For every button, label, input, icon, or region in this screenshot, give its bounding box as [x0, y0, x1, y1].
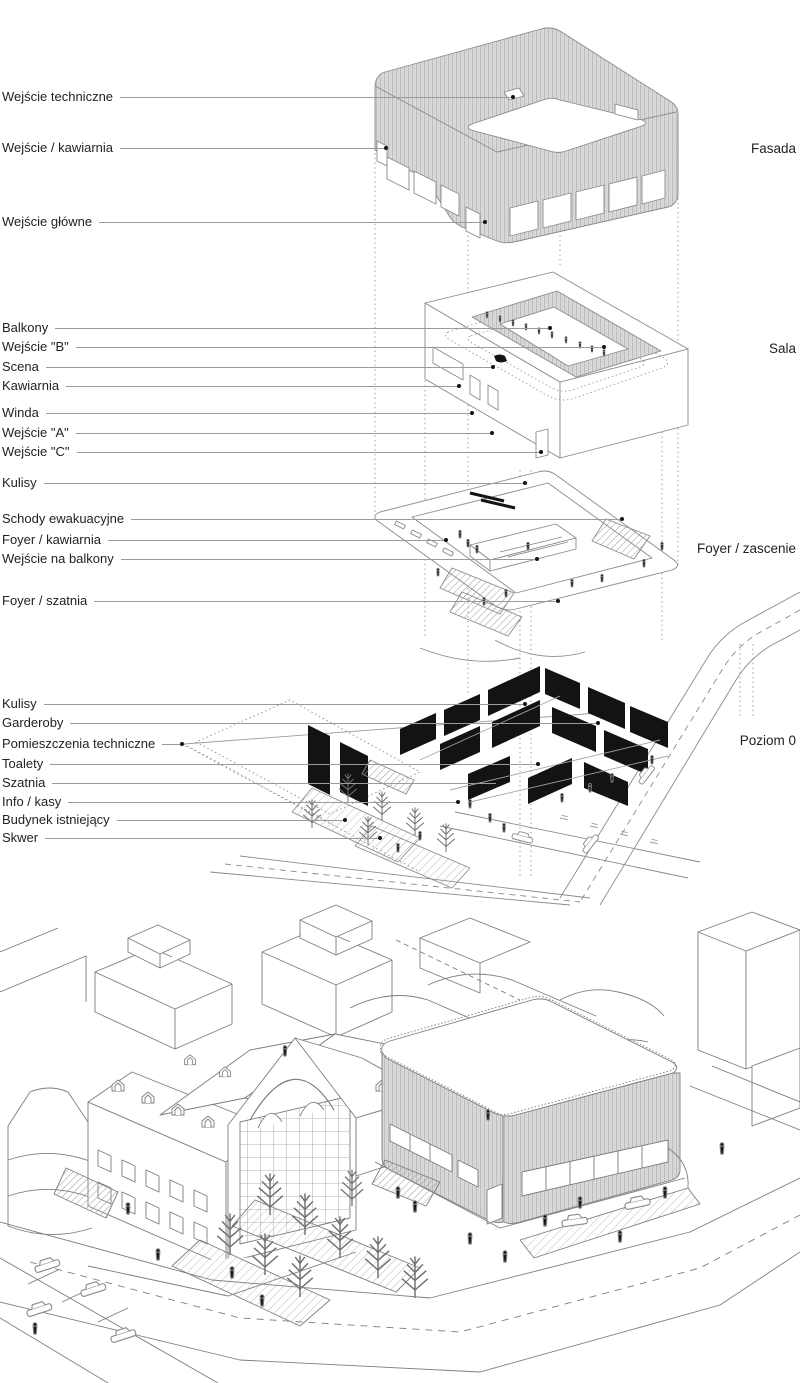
callout-label: Balkony [2, 321, 55, 335]
new-building-door [487, 1184, 502, 1224]
callout-wejscie-techniczne: Wejście techniczne [2, 90, 515, 104]
callout-budynek-istniejacy: Budynek istniejący [2, 813, 347, 827]
callout-pomieszczenia-techniczne: Pomieszczenia techniczne [2, 737, 184, 751]
callout-skwer: Skwer [2, 831, 382, 845]
leader-dot [496, 781, 500, 785]
leader-dot [180, 742, 184, 746]
fasada-layer [375, 28, 678, 243]
leader-dot [483, 220, 487, 224]
leader-dot [523, 702, 527, 706]
leader-line [68, 802, 456, 803]
leader-dot [620, 517, 624, 521]
leader-dot [378, 836, 382, 840]
leader-dot [511, 95, 515, 99]
callout-label: Wejście / kawiarnia [2, 141, 120, 155]
leader-line [45, 838, 378, 839]
callout-label: Kulisy [2, 697, 44, 711]
callout-label: Toalety [2, 757, 50, 771]
level-label-poziom-0: Poziom 0 [740, 733, 796, 748]
callout-schody-ewakuacyjne: Schody ewakuacyjne [2, 512, 624, 526]
callout-wejscie-na-balkony: Wejście na balkony [2, 552, 539, 566]
leader-line [117, 820, 343, 821]
leader-dot [548, 326, 552, 330]
leader-line [46, 367, 491, 368]
leader-dot [470, 411, 474, 415]
leader-line [121, 559, 535, 560]
callout-wejscie-b: Wejście "B" [2, 340, 606, 354]
callout-wejscie-c: Wejście "C" [2, 445, 543, 459]
leader-line [66, 386, 457, 387]
leader-dot [491, 365, 495, 369]
leader-dot [456, 800, 460, 804]
leader-dot [444, 538, 448, 542]
callout-balkony: Balkony [2, 321, 552, 335]
bike-racks [560, 815, 658, 844]
callout-wejscie-glowne: Wejście główne [2, 215, 487, 229]
callout-label: Garderoby [2, 716, 70, 730]
leader-dot [539, 450, 543, 454]
leader-dot [535, 557, 539, 561]
leader-dot [490, 431, 494, 435]
callout-toalety: Toalety [2, 757, 540, 771]
level-label-fasada: Fasada [751, 141, 796, 156]
callout-label: Pomieszczenia techniczne [2, 737, 162, 751]
leader-line [77, 452, 539, 453]
callout-label: Info / kasy [2, 795, 68, 809]
leader-line [76, 433, 490, 434]
callout-foyer-kawiarnia: Foyer / kawiarnia [2, 533, 448, 547]
leader-dot [343, 818, 347, 822]
callout-label: Foyer / szatnia [2, 594, 94, 608]
leader-line [70, 723, 596, 724]
leader-line [44, 704, 523, 705]
leader-line [162, 744, 180, 745]
callout-label: Budynek istniejący [2, 813, 117, 827]
callout-label: Szatnia [2, 776, 52, 790]
callout-kawiarnia: Kawiarnia [2, 379, 461, 393]
leader-line [44, 483, 523, 484]
callout-winda: Winda [2, 406, 474, 420]
callout-label: Wejście "A" [2, 426, 76, 440]
leader-line [120, 97, 511, 98]
callout-scena: Scena [2, 360, 495, 374]
callout-kulisy-2: Kulisy [2, 697, 527, 711]
leader-dot [384, 146, 388, 150]
level-label-foyer-zascenie: Foyer / zascenie [697, 541, 796, 556]
callout-label: Kawiarnia [2, 379, 66, 393]
callout-label: Skwer [2, 831, 45, 845]
leader-line [99, 222, 483, 223]
level-label-sala: Sala [769, 341, 796, 356]
leader-dot [556, 599, 560, 603]
callout-label: Foyer / kawiarnia [2, 533, 108, 547]
leader-line [76, 347, 602, 348]
leader-line [120, 148, 384, 149]
callout-label: Kulisy [2, 476, 44, 490]
leader-line [52, 783, 496, 784]
leader-line [55, 328, 548, 329]
callout-label: Wejście "C" [2, 445, 77, 459]
leader-dot [523, 481, 527, 485]
callout-label: Wejście główne [2, 215, 99, 229]
callout-label: Wejście techniczne [2, 90, 120, 104]
callout-wejscie-kawiarnia: Wejście / kawiarnia [2, 141, 388, 155]
leader-dot [602, 345, 606, 349]
callout-szatnia: Szatnia [2, 776, 500, 790]
callout-label: Winda [2, 406, 46, 420]
architectural-diagram-page: Wejście techniczne Wejście / kawiarnia W… [0, 0, 800, 1383]
callout-kulisy-1: Kulisy [2, 476, 527, 490]
callout-wejscie-a: Wejście "A" [2, 426, 494, 440]
callout-garderoby: Garderoby [2, 716, 600, 730]
site-roads [186, 592, 800, 905]
leader-dot [457, 384, 461, 388]
leader-line [46, 413, 470, 414]
site-view [0, 905, 800, 1383]
leader-line [50, 764, 536, 765]
poziom0-layer [184, 592, 800, 905]
callout-label: Wejście "B" [2, 340, 76, 354]
leader-dot [536, 762, 540, 766]
leader-line [108, 540, 444, 541]
callout-info-kasy: Info / kasy [2, 795, 460, 809]
callout-label: Wejście na balkony [2, 552, 121, 566]
leader-line [94, 601, 556, 602]
leader-dot [596, 721, 600, 725]
callout-foyer-szatnia: Foyer / szatnia [2, 594, 560, 608]
exploded-axonometric-drawing [0, 0, 800, 1383]
leader-line [131, 519, 620, 520]
callout-label: Scena [2, 360, 46, 374]
callout-label: Schody ewakuacyjne [2, 512, 131, 526]
corner-tower [8, 1088, 92, 1235]
